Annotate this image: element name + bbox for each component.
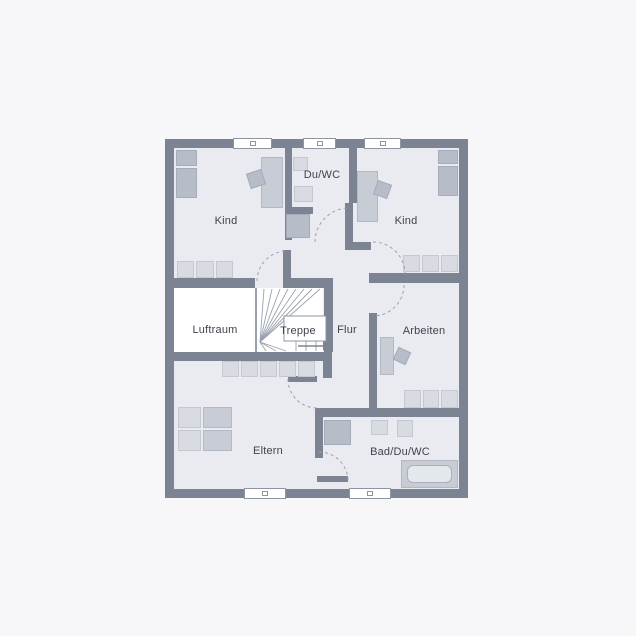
window-bad bbox=[349, 488, 391, 499]
room-label-bad: Bad/Du/WC bbox=[370, 446, 430, 458]
wall-flur-arbeiten bbox=[369, 313, 377, 413]
wall-outer-left bbox=[165, 139, 174, 498]
door-leaf-duwc bbox=[345, 203, 353, 243]
cabinet-row-kind-right bbox=[403, 255, 458, 272]
window-duwc bbox=[303, 138, 336, 149]
stairwell-void bbox=[257, 288, 323, 352]
room-label-duwc: Du/WC bbox=[304, 169, 340, 181]
window-eltern bbox=[244, 488, 286, 499]
door-leaf-kind-left bbox=[283, 250, 291, 281]
wall-bad-top bbox=[315, 408, 459, 417]
wall-eltern-bad bbox=[315, 408, 323, 458]
wall-duwc-stub bbox=[285, 207, 313, 214]
bed-kind-right bbox=[357, 171, 378, 222]
mattress bbox=[203, 407, 232, 428]
room-label-flur: Flur bbox=[337, 324, 357, 336]
cabinet-row-kind-left bbox=[177, 261, 233, 278]
bathtub-bad bbox=[401, 460, 458, 488]
pillow bbox=[178, 407, 201, 428]
window-pane-icon bbox=[317, 141, 323, 146]
shower-bad bbox=[324, 420, 351, 445]
wc-bad bbox=[397, 420, 413, 437]
window-kind-right bbox=[364, 138, 401, 149]
room-label-eltern: Eltern bbox=[253, 445, 283, 457]
shower-duwc bbox=[286, 214, 310, 238]
sink-bad bbox=[371, 420, 388, 435]
wall-outer-bottom bbox=[165, 489, 468, 498]
desk-arbeiten bbox=[380, 337, 394, 375]
wall-flur-stub bbox=[345, 242, 371, 250]
luftraum-stair-divider bbox=[255, 288, 257, 352]
wall-stair-right bbox=[324, 286, 333, 352]
wall-duwc-kindright bbox=[349, 148, 357, 203]
window-pane-icon bbox=[250, 141, 256, 146]
wardrobe-kind-left bbox=[176, 168, 197, 198]
pillow bbox=[178, 430, 201, 451]
wardrobe-kind-right-top bbox=[438, 150, 458, 164]
cabinet-row-eltern bbox=[222, 361, 315, 377]
washbasin-duwc bbox=[294, 186, 313, 202]
room-label-treppe: Treppe bbox=[280, 325, 316, 337]
double-bed-eltern bbox=[178, 407, 232, 453]
window-pane-icon bbox=[367, 491, 373, 496]
wall-stair-bottom bbox=[174, 352, 332, 361]
bathtub-basin bbox=[407, 465, 452, 483]
wall-kindright-arbeiten bbox=[369, 273, 459, 283]
mattress bbox=[203, 430, 232, 451]
room-label-kind-left: Kind bbox=[215, 215, 238, 227]
wall-kindleft-bottom bbox=[174, 278, 255, 288]
wardrobe-kind-right bbox=[438, 166, 458, 196]
wall-flur-eltern-cap bbox=[323, 352, 332, 378]
room-label-luftraum: Luftraum bbox=[192, 324, 237, 336]
room-label-arbeiten: Arbeiten bbox=[403, 325, 446, 337]
cabinet-row-arbeiten bbox=[404, 390, 458, 408]
door-leaf-bad bbox=[317, 476, 348, 482]
window-pane-icon bbox=[380, 141, 386, 146]
floor-plan: Kind Du/WC Kind Luftraum Treppe Flur Arb… bbox=[0, 0, 636, 636]
wall-outer-right bbox=[459, 139, 468, 498]
luftraum-void bbox=[174, 288, 255, 352]
wardrobe-kind-left-top bbox=[176, 150, 197, 166]
window-pane-icon bbox=[262, 491, 268, 496]
room-label-kind-right: Kind bbox=[395, 215, 418, 227]
window-kind-left bbox=[233, 138, 272, 149]
